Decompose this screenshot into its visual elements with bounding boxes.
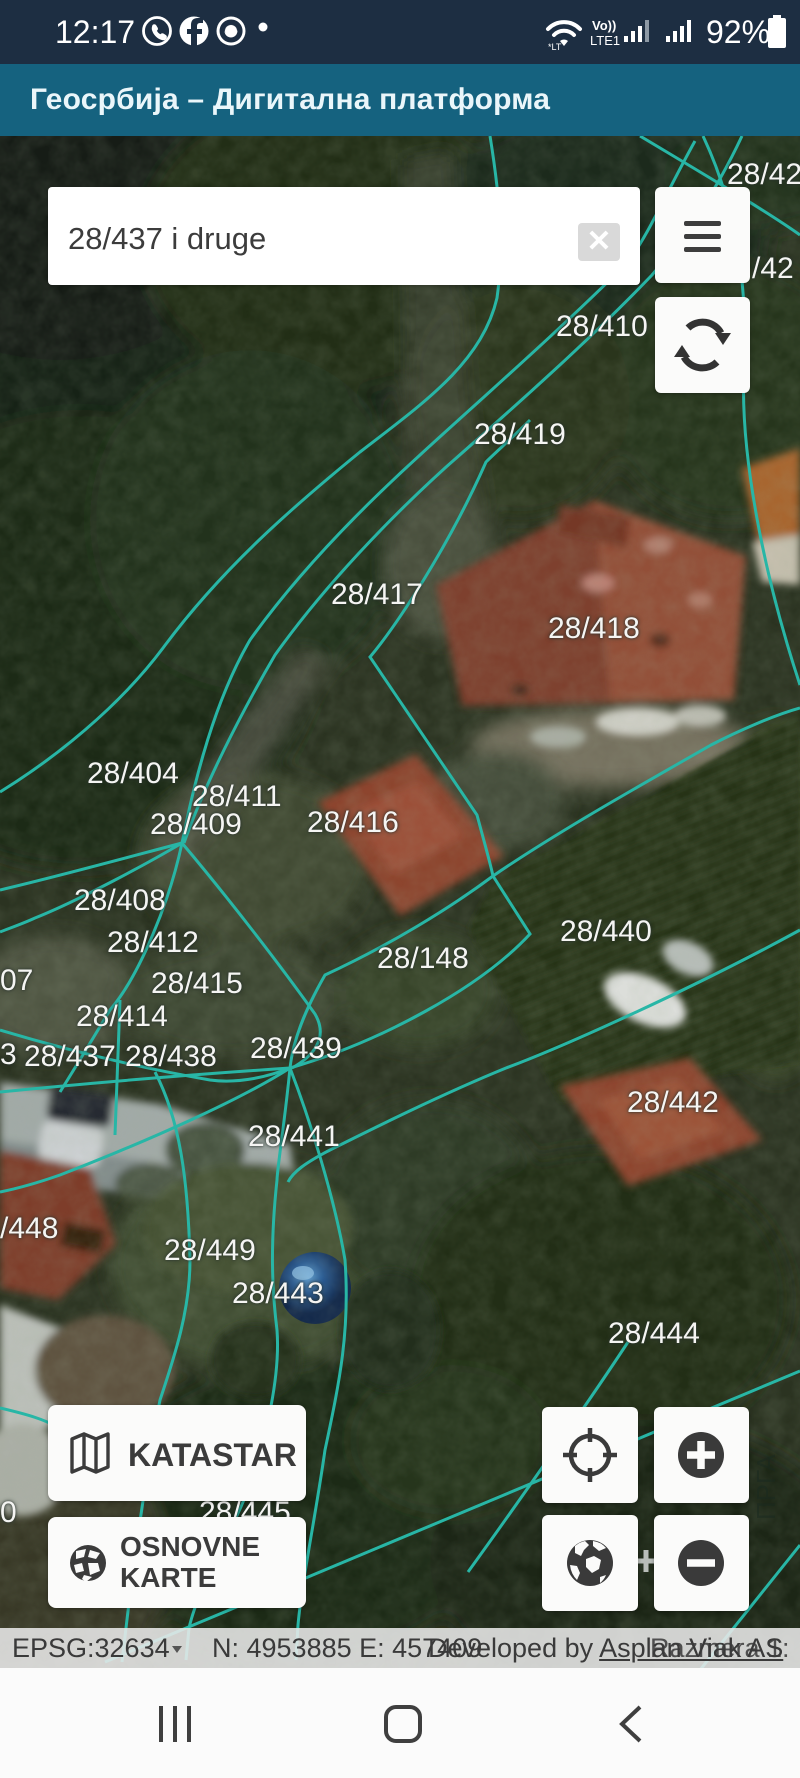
svg-text:Vo)): Vo)) xyxy=(592,18,616,33)
svg-text:ПРГА: ПРГА xyxy=(751,1454,781,1520)
svg-text:*LT: *LT xyxy=(548,42,562,52)
svg-text:LTE1: LTE1 xyxy=(590,33,620,48)
